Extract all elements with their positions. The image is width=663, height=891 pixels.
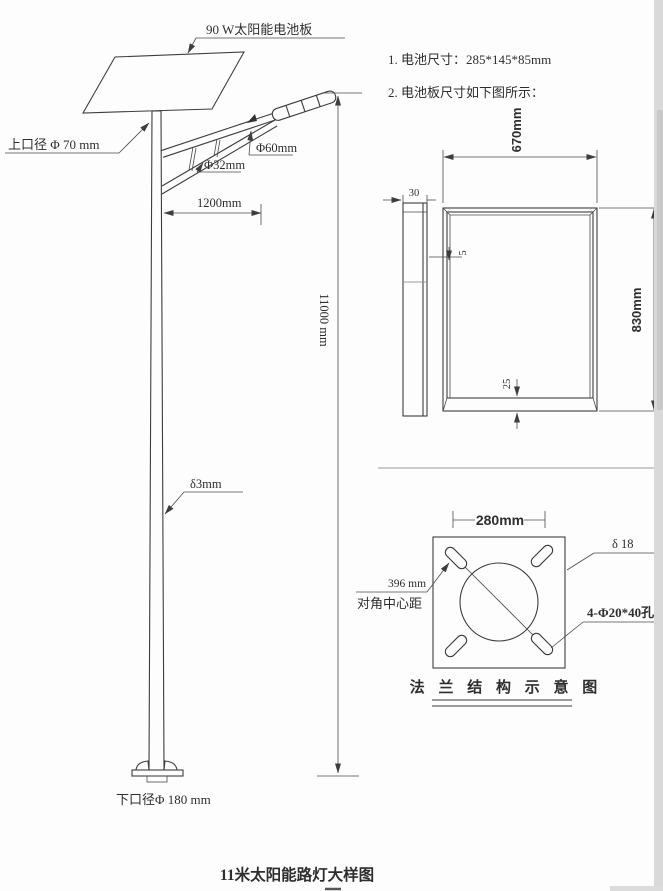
solar-panel-label: 90 W太阳能电池板: [206, 22, 312, 37]
arm-length-dimension: 1200mm: [164, 196, 261, 225]
scan-edge-bottom: [610, 886, 663, 891]
top-diameter-label: 上口径 Φ 70 mm: [8, 137, 99, 152]
notes: 1. 电池尺寸：285*145*85mm 2. 电池板尺寸如下图所示：: [388, 52, 551, 100]
pole-height-dimension: 11000 mm: [317, 93, 362, 776]
scan-edge-right-dark: [657, 110, 663, 410]
brace-diameter-label: Φ32mm: [204, 158, 245, 172]
panel-detail-views: 30 5 670mm 83: [383, 108, 660, 429]
frame-lip-label: 5: [458, 250, 469, 255]
bolt-spacing-dimension: 280mm: [453, 511, 545, 528]
panel-width-dimension: 670mm: [443, 108, 597, 203]
solar-panel-leader: [188, 38, 196, 53]
bolt-spacing-label: 280mm: [476, 512, 524, 528]
note-battery-size: 1. 电池尺寸：285*145*85mm: [388, 52, 551, 67]
bottom-diameter-label: 下口径Φ 180 mm: [116, 792, 211, 807]
flange-schematic: 280mm 396 mm 对角中心距 δ 18 4-Φ20*40孔: [356, 511, 659, 706]
wall-thickness-leader: [165, 492, 184, 514]
panel-height-dimension: 830mm: [599, 208, 660, 411]
wall-thickness-label: δ3mm: [190, 477, 222, 491]
panel-front-view: [443, 208, 597, 411]
top-diameter-leader: [119, 123, 149, 153]
note-panel-size: 2. 电池板尺寸如下图所示：: [388, 85, 544, 100]
panel-height-label: 830mm: [629, 288, 644, 333]
panel-side-view: [403, 203, 427, 416]
plate-thickness-callout: δ 18: [567, 537, 659, 570]
drawing-page: 90 W太阳能电池板 Φ60mm Φ32mm: [0, 0, 663, 891]
arm-diameter-label: Φ60mm: [256, 141, 297, 155]
flange-caption: 法 兰 结 构 示 意 图: [410, 678, 603, 696]
bolt-holes-callout: 4-Φ20*40孔: [551, 605, 658, 648]
solar-panel: [83, 52, 244, 113]
diagonal-distance-label: 396 mm: [388, 578, 426, 590]
pole-shaft: [149, 111, 164, 770]
bottom-lip-label: 25: [502, 379, 513, 390]
panel-width-label: 670mm: [509, 108, 524, 153]
diagonal-note-label: 对角中心距: [357, 596, 422, 611]
drawing-title: 11米太阳能路灯大样图: [220, 865, 374, 884]
thickness-dimension: 30: [383, 188, 436, 204]
arm-length-label: 1200mm: [197, 196, 242, 210]
pole-height-label: 11000 mm: [317, 293, 331, 347]
pole-elevation: 90 W太阳能电池板 Φ60mm Φ32mm: [5, 22, 362, 807]
bolt-holes-label: 4-Φ20*40孔: [587, 605, 654, 620]
arm-marker-arrow: [247, 114, 257, 123]
technical-drawing: 90 W太阳能电池板 Φ60mm Φ32mm: [0, 0, 663, 891]
plate-thickness-label: δ 18: [612, 537, 634, 551]
lamp-head: [271, 90, 337, 122]
thickness-label: 30: [409, 188, 420, 199]
